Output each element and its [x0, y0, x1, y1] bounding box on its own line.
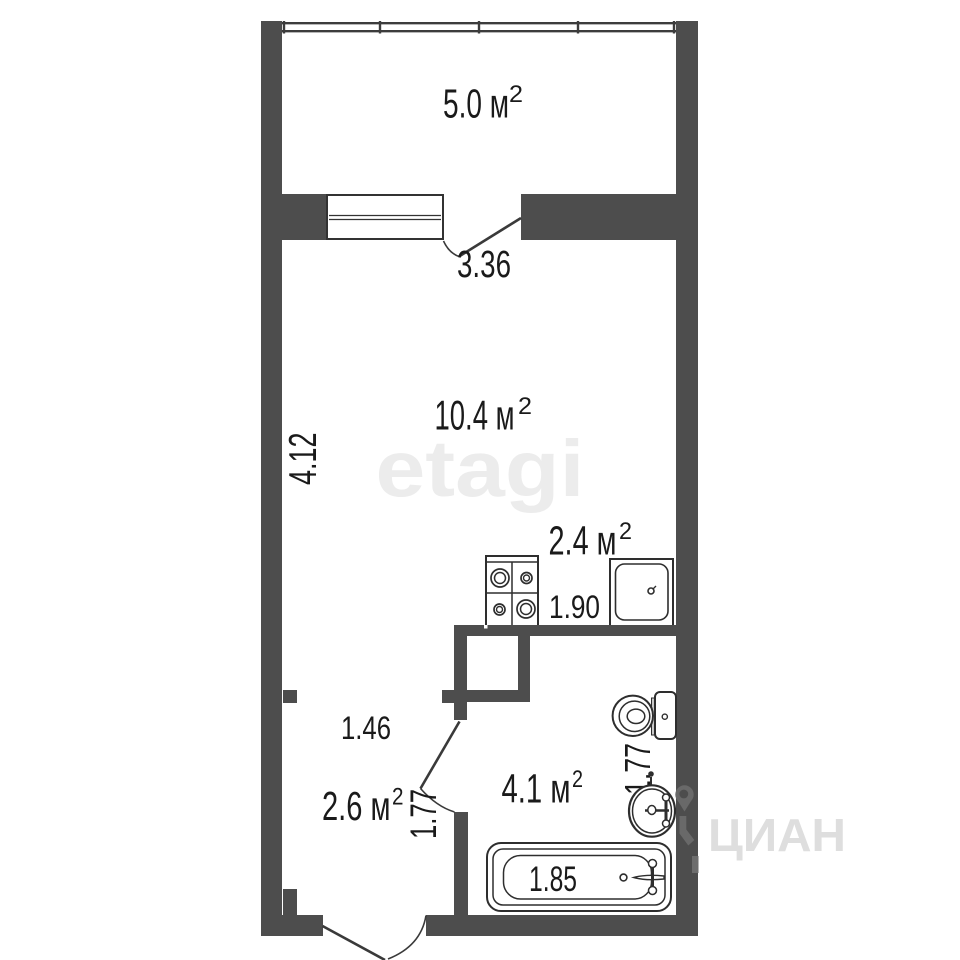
svg-text:2: 2 [518, 393, 532, 420]
svg-text:2: 2 [619, 518, 632, 545]
svg-text:1.85: 1.85 [529, 860, 577, 899]
svg-text:2: 2 [392, 784, 404, 811]
svg-text:4.12: 4.12 [282, 433, 325, 486]
svg-text:5.0 м: 5.0 м [443, 81, 509, 127]
svg-text:1.90: 1.90 [549, 589, 600, 625]
svg-text:1.46: 1.46 [341, 710, 391, 746]
svg-text:3.36: 3.36 [457, 244, 511, 286]
svg-text:2.4 м: 2.4 м [549, 518, 617, 564]
svg-text:2.6 м: 2.6 м [322, 783, 391, 829]
svg-text:2: 2 [509, 81, 523, 108]
svg-text:ЦИАН: ЦИАН [708, 809, 846, 861]
svg-text:2: 2 [572, 766, 583, 793]
svg-text:1.77: 1.77 [403, 789, 444, 839]
svg-text:10.4 м: 10.4 м [435, 392, 515, 439]
svg-text:4.1 м: 4.1 м [502, 766, 571, 812]
